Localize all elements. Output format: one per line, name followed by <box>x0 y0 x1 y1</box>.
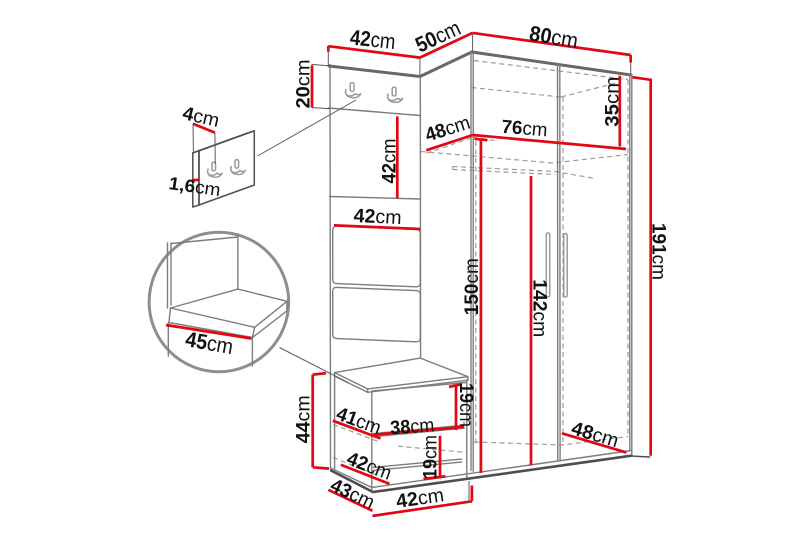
svg-text:35cm: 35cm <box>602 77 623 127</box>
svg-text:44cm: 44cm <box>293 395 315 443</box>
svg-text:42cm: 42cm <box>353 205 402 229</box>
svg-text:19cm: 19cm <box>421 435 442 479</box>
svg-text:191cm: 191cm <box>648 223 669 280</box>
svg-text:142cm: 142cm <box>528 279 549 337</box>
svg-text:150cm: 150cm <box>462 258 483 315</box>
svg-text:42cm: 42cm <box>380 139 401 184</box>
svg-text:19cm: 19cm <box>455 383 476 427</box>
svg-text:42cm: 42cm <box>349 25 397 54</box>
svg-text:76cm: 76cm <box>501 117 549 142</box>
svg-text:20cm: 20cm <box>293 60 314 109</box>
